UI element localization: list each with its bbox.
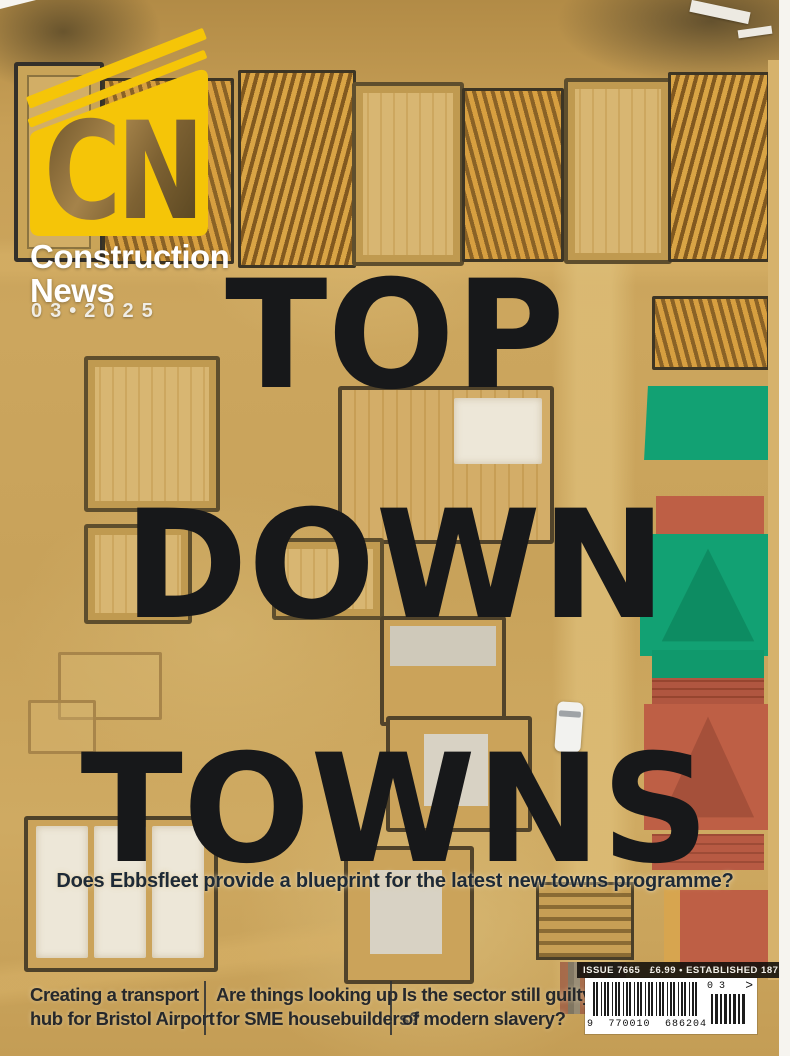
headline-towns: TOWNS [0, 735, 790, 885]
subheadline: Does Ebbsfleet provide a blueprint for t… [0, 870, 790, 893]
barcode-addon: 0 3 > [707, 981, 753, 992]
photo-red-roof [664, 890, 768, 968]
teaser-bristol-airport: Creating a transport hub for Bristol Air… [30, 983, 214, 1031]
cn-logo-letters: CN [44, 104, 200, 239]
photo-crane [689, 0, 750, 24]
barcode-digit-group: 686204 [665, 1019, 707, 1030]
photo-timber-house [462, 88, 564, 262]
barcode-digits: 9 770010 686204 [587, 1019, 707, 1030]
photo-green-roof [652, 650, 764, 678]
scan-edge-right [779, 0, 790, 1056]
headline-top: TOP [0, 261, 790, 411]
photo-timber-house [352, 82, 464, 266]
teaser-line: Creating a transport [30, 983, 214, 1007]
teaser-line: hub for Bristol Airport [30, 1007, 214, 1031]
teaser-line: Is the sector still guilty [402, 983, 592, 1007]
teaser-divider [390, 981, 392, 1035]
photo-timber-house [564, 78, 672, 264]
teaser-line: of modern slavery? [402, 1007, 592, 1031]
photo-red-roof [652, 678, 764, 704]
barcode-addon-bars [711, 994, 745, 1024]
headline-down: DOWN [0, 491, 790, 641]
barcode-addon-digits: 0 3 [707, 981, 725, 992]
barcode-digit-group: 770010 [608, 1019, 650, 1030]
photo-timber-house [238, 70, 356, 268]
barcode-digit-left: 9 [587, 1019, 594, 1030]
scan-edge-top-left [0, 0, 36, 9]
photo-timber-house [668, 72, 770, 262]
magazine-cover: CN Construction News 03•2025 TOP DOWN TO… [0, 0, 790, 1056]
barcode-bars [593, 982, 699, 1016]
photo-house-wall [664, 890, 680, 968]
teaser-divider [204, 981, 206, 1035]
barcode: 9 770010 686204 0 3 > [585, 978, 757, 1034]
photo-crane [738, 26, 773, 39]
issue-info-strip: ISSUE 7665 £6.99 • ESTABLISHED 1871 [577, 962, 790, 978]
barcode-addon-arrow: > [745, 981, 753, 992]
teaser-modern-slavery: Is the sector still guilty of modern sla… [402, 983, 592, 1031]
